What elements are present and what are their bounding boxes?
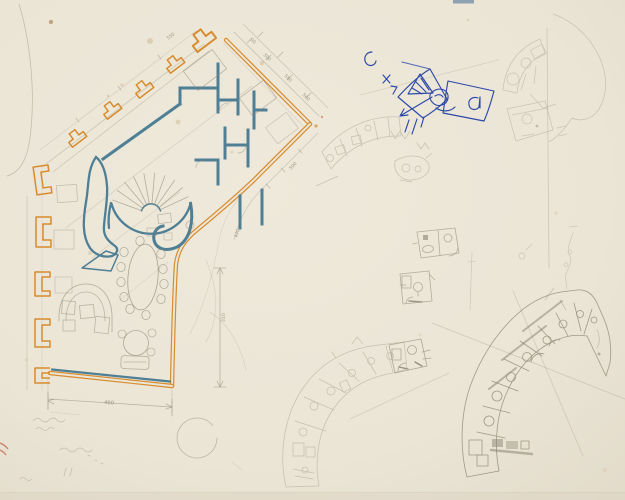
- blue-sheet-tab: [453, 0, 474, 4]
- paper-background: [0, 0, 625, 500]
- sketch-canvas: 550 90 300 580 560 590 440 310 400: [0, 0, 625, 500]
- paper-bottom-edge: [0, 493, 625, 500]
- dim-label-bottom: 400: [104, 400, 114, 407]
- dim-label-right: 310: [221, 313, 227, 322]
- sketch-photo: 550 90 300 580 560 590 440 310 400: [0, 0, 625, 500]
